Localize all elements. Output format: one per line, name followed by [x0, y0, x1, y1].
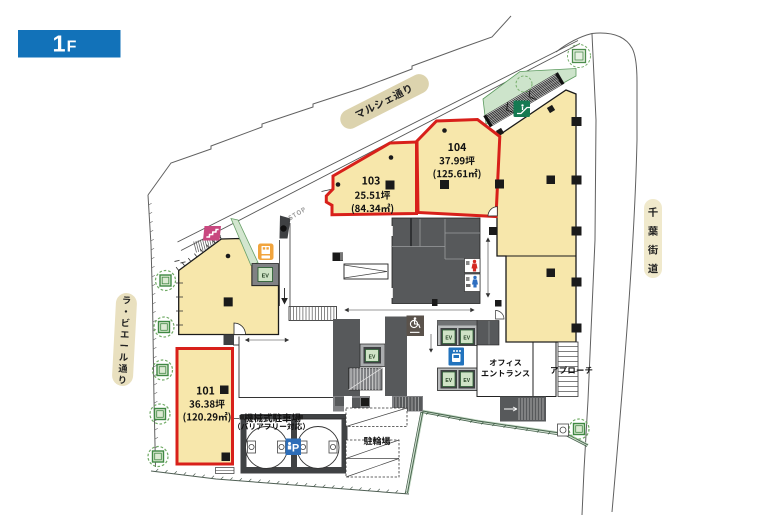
svg-text:P: P: [292, 443, 299, 455]
svg-text:F: F: [67, 39, 77, 56]
svg-text:EV: EV: [463, 336, 470, 342]
svg-text:EV: EV: [463, 378, 470, 384]
svg-text:EV: EV: [369, 355, 376, 361]
svg-text:1: 1: [52, 31, 65, 57]
svg-text:EV: EV: [445, 336, 452, 342]
svg-text:EV: EV: [262, 274, 270, 280]
svg-text:EV: EV: [445, 378, 452, 384]
